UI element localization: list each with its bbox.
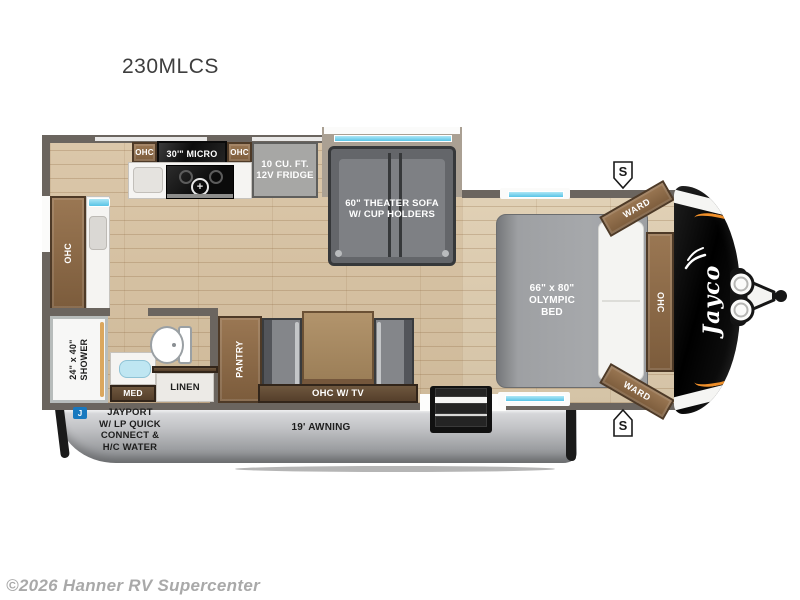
skirt-shadow bbox=[235, 466, 555, 472]
watermark: ©2026 Hanner RV Supercenter bbox=[6, 576, 260, 596]
marker-light-icon bbox=[708, 190, 716, 195]
slideout-window bbox=[334, 135, 452, 142]
window bbox=[252, 137, 322, 141]
bath-wall bbox=[148, 308, 218, 316]
rear-ohc-cabinet: OHC bbox=[50, 196, 86, 310]
ohc-tv-cabinet: OHC W/ TV bbox=[258, 384, 418, 403]
bench-rail bbox=[377, 322, 381, 388]
window-glass bbox=[505, 395, 565, 402]
entry-steps bbox=[430, 386, 492, 433]
bench-rail bbox=[295, 322, 299, 388]
jayco-logo-text: Jayco bbox=[699, 265, 725, 336]
med-label: MED bbox=[123, 388, 143, 398]
jayport-badge-letter: J bbox=[78, 409, 82, 418]
ohc-tv-label: OHC W/ TV bbox=[312, 388, 364, 399]
shower-door-icon bbox=[100, 322, 104, 397]
page-title: 230MLCS bbox=[122, 55, 219, 79]
dinette-table bbox=[302, 311, 374, 384]
jayport-badge: J bbox=[73, 407, 87, 419]
fridge-label: 10 CU. FT. 12V FRIDGE bbox=[256, 159, 313, 181]
fridge: 10 CU. FT. 12V FRIDGE bbox=[252, 142, 318, 198]
bedroom-ohc-label: OHC bbox=[655, 292, 666, 313]
shower-label: 24" x 40" SHOWER bbox=[68, 339, 89, 381]
svg-text:S: S bbox=[619, 164, 628, 179]
floorplan-canvas: 230MLCS OHC 24" x 40" SHOWER MED bbox=[0, 0, 800, 600]
speaker-badge-top: S bbox=[611, 160, 635, 190]
window bbox=[42, 196, 50, 252]
skirt-right-edge bbox=[566, 409, 576, 461]
jayport-label: JAYPORT W/ LP QUICK CONNECT & H/C WATER bbox=[88, 407, 172, 453]
kitchen-sink-icon bbox=[133, 167, 163, 193]
microwave-label: 30'" MICRO bbox=[167, 149, 218, 160]
hitch-ball-icon bbox=[775, 290, 787, 302]
kitchen-ohc-right-label: OHC bbox=[230, 148, 248, 157]
linen-label: LINEN bbox=[170, 382, 200, 393]
kitchen-ohc-right: OHC bbox=[227, 142, 252, 163]
linen-closet: LINEN bbox=[156, 373, 214, 402]
theater-sofa-label: 60" THEATER SOFA W/ CUP HOLDERS bbox=[345, 198, 439, 220]
toilet-icon bbox=[150, 322, 196, 368]
rear-ohc-label: OHC bbox=[63, 243, 74, 264]
marker-light-icon bbox=[708, 405, 716, 410]
marker-light-icon bbox=[719, 403, 727, 408]
theater-sofa: 60" THEATER SOFA W/ CUP HOLDERS bbox=[328, 146, 456, 266]
pantry: PANTRY bbox=[218, 316, 262, 403]
bench-back bbox=[404, 320, 412, 390]
kitchen-ohc-left-label: OHC bbox=[135, 148, 153, 157]
propane-tank-icon bbox=[730, 298, 753, 322]
bed-label: 66" x 80" OLYMPIC BED bbox=[529, 283, 575, 319]
propane-tank-icon bbox=[730, 272, 753, 296]
cup-holder-icon bbox=[335, 250, 342, 257]
rear-counter bbox=[86, 196, 110, 310]
bedroom-ohc-cabinet: OHC bbox=[646, 232, 674, 372]
rear-sink-icon bbox=[88, 198, 110, 207]
speaker-badge-bottom: S bbox=[611, 408, 635, 438]
bench-back bbox=[264, 320, 272, 390]
pillow bbox=[598, 221, 644, 381]
svg-text:S: S bbox=[619, 418, 628, 433]
slideout-edge bbox=[324, 127, 460, 134]
linen-shelf-top bbox=[152, 366, 218, 373]
dinette-bench bbox=[262, 318, 302, 392]
window-glass bbox=[508, 191, 564, 198]
shower: 24" x 40" SHOWER bbox=[50, 316, 108, 403]
sink-icon bbox=[119, 360, 151, 378]
marker-light-icon bbox=[719, 192, 727, 197]
bath-wall bbox=[48, 308, 110, 316]
awning-label: 19' AWNING bbox=[286, 422, 356, 434]
dinette-bench bbox=[374, 318, 414, 392]
kitchen-ohc-left: OHC bbox=[132, 142, 157, 163]
cup-holder-icon bbox=[442, 250, 449, 257]
pantry-label: PANTRY bbox=[235, 341, 246, 378]
hitch-icon bbox=[730, 262, 788, 334]
rear-counter-basin bbox=[89, 216, 107, 250]
pillow-split bbox=[602, 300, 640, 302]
med-cabinet: MED bbox=[110, 385, 156, 402]
jayco-logo: Jayco bbox=[700, 240, 724, 360]
stove-icon: + bbox=[166, 165, 234, 199]
